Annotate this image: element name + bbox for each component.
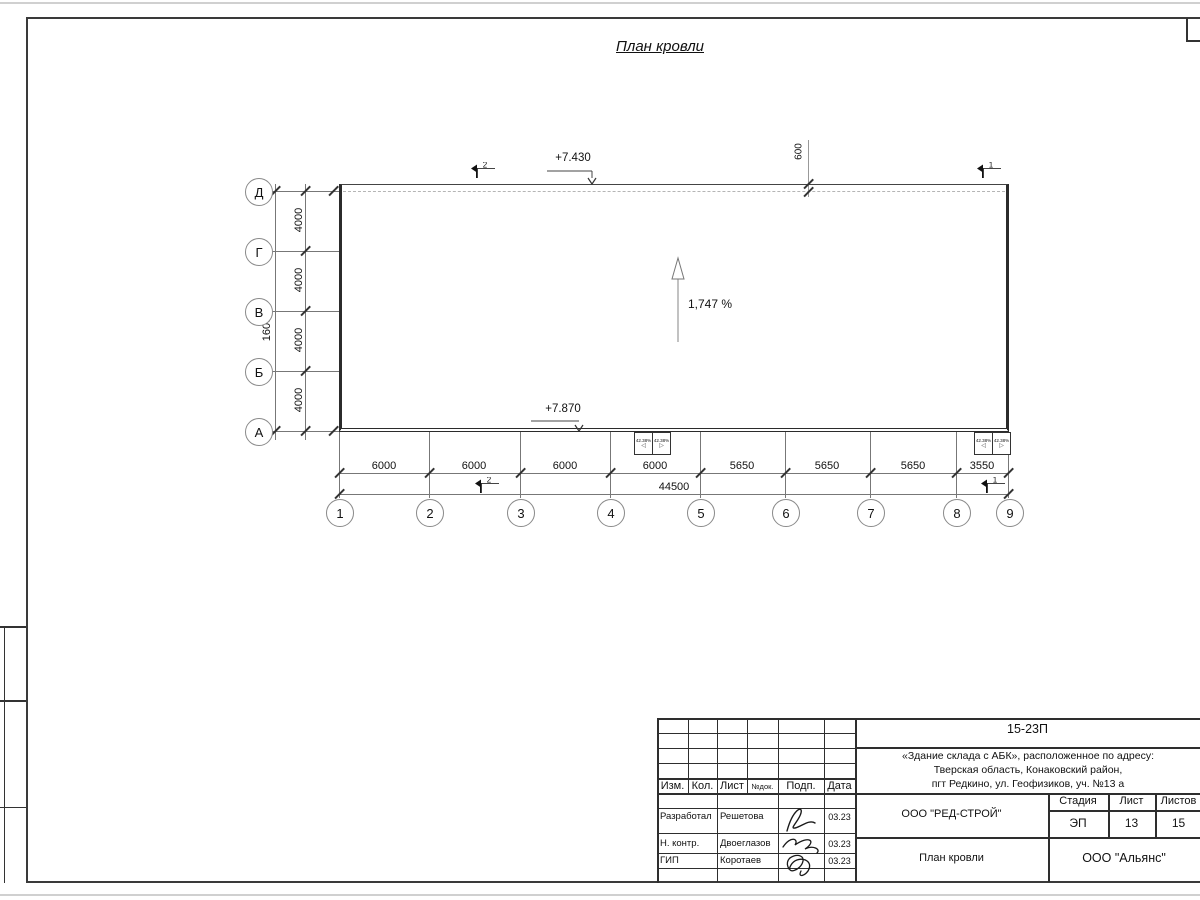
sheets-header: Листов [1155, 795, 1200, 807]
side-stamp-line [0, 807, 26, 808]
col-header-izm: Изм. [657, 780, 688, 792]
axis-circle-col: 3 [507, 499, 535, 527]
title-block-line [657, 868, 855, 869]
axis-label: 8 [953, 506, 960, 521]
row-date: 03.23 [824, 839, 855, 849]
roof-funnel: 42.38% ◁ 42.38% ▷ [634, 432, 671, 455]
axis-line [520, 432, 521, 498]
elevation-leader-icon [545, 167, 597, 187]
slope-label: 1,747 % [688, 297, 732, 311]
arrow-right-icon: ▷ [659, 443, 664, 450]
side-stamp-line [0, 626, 26, 628]
axis-label: Г [255, 245, 262, 260]
title-block-line [855, 837, 1200, 839]
elevation-leader-icon [529, 417, 585, 433]
axis-label: 3 [517, 506, 524, 521]
sheet-header: Лист [1108, 795, 1155, 807]
sheet: План кровли [0, 0, 1200, 900]
title-block-line [657, 748, 855, 749]
parapet-dashed-line [343, 191, 1005, 192]
side-stamp-line [4, 626, 5, 883]
axis-label: Б [255, 365, 264, 380]
sheets-value: 15 [1155, 816, 1200, 830]
title-block-line [717, 718, 718, 882]
axis-line [785, 432, 786, 498]
axis-circle-col: 8 [943, 499, 971, 527]
axis-circle-col: 2 [416, 499, 444, 527]
col-header-kol: Кол. [688, 780, 717, 792]
arrow-right-icon: ▷ [999, 443, 1004, 450]
title-block-line [657, 808, 855, 809]
axis-circle-row: Б [245, 358, 273, 386]
dimension-line [339, 473, 1009, 474]
arrow-left-icon: ◁ [641, 443, 646, 450]
funnel-cell: 42.38% ▷ [653, 433, 670, 454]
address-line: «Здание склада с АБК», расположенное по … [858, 749, 1198, 763]
corner-mark [1186, 18, 1188, 40]
contractor-name: ООО "Альянс" [1048, 851, 1200, 865]
col-header-data: Дата [824, 780, 855, 792]
row-date: 03.23 [824, 812, 855, 822]
axis-label: Д [255, 185, 264, 200]
corner-mark [1186, 40, 1200, 42]
doc-number: 15-23П [855, 722, 1200, 736]
paper-edge-top [0, 2, 1200, 4]
stage-value: ЭП [1048, 816, 1108, 830]
row-role: Н. контр. [660, 838, 716, 849]
axis-circle-row: Д [245, 178, 273, 206]
dim-label: 6000 [625, 460, 685, 472]
stage-header: Стадия [1048, 795, 1108, 807]
dim-label: 5650 [797, 460, 857, 472]
sheet-title: План кровли [855, 852, 1048, 864]
axis-circle-row: А [245, 418, 273, 446]
dim-label: 4000 [293, 316, 305, 364]
section-number: 1 [993, 477, 998, 485]
axis-label: А [255, 425, 264, 440]
axis-label: 6 [782, 506, 789, 521]
dim-label: 4000 [293, 196, 305, 244]
page-title: План кровли [560, 38, 760, 55]
axis-label: 7 [867, 506, 874, 521]
axis-circle-col: 1 [326, 499, 354, 527]
dim-label: 6000 [535, 460, 595, 472]
arrow-left-icon: ◁ [981, 443, 986, 450]
title-block-line [657, 833, 855, 834]
dim-label: 600 [794, 128, 805, 176]
axis-label: 1 [336, 506, 343, 521]
dim-label: 4000 [293, 376, 305, 424]
axis-circle-col: 5 [687, 499, 715, 527]
project-address: «Здание склада с АБК», расположенное по … [858, 749, 1198, 791]
axis-circle-col: 4 [597, 499, 625, 527]
dim-label: 6000 [444, 460, 504, 472]
section-mark-icon: 1 [980, 477, 1006, 497]
axis-label: В [255, 305, 264, 320]
axis-label: 5 [697, 506, 704, 521]
axis-label: 4 [607, 506, 614, 521]
title-block-line [1048, 810, 1200, 812]
axis-line [610, 432, 611, 498]
side-stamp-line [0, 700, 26, 702]
axis-line [429, 432, 430, 498]
title-block-line [657, 763, 855, 764]
axis-label: 2 [426, 506, 433, 521]
dimension-line [339, 494, 1009, 495]
section-number: 2 [487, 477, 492, 485]
col-header-list: Лист [717, 780, 747, 792]
address-line: Тверская область, Конаковский район, [858, 763, 1198, 777]
axis-circle-row: В [245, 298, 273, 326]
dim-label: 6000 [354, 460, 414, 472]
section-number: 1 [989, 162, 994, 170]
row-name: Решетова [720, 811, 777, 822]
funnel-cell: 42.38% ◁ [635, 433, 653, 454]
section-mark-icon: 1 [976, 162, 1002, 182]
axis-circle-col: 7 [857, 499, 885, 527]
title-block-line [657, 733, 855, 734]
section-number: 2 [483, 162, 488, 170]
row-role: ГИП [660, 855, 716, 866]
address-line: пгт Редкино, ул. Геофизиков, уч. №13 а [858, 777, 1198, 791]
axis-label: 9 [1006, 506, 1013, 521]
signature-icon [779, 795, 825, 883]
section-mark-icon: 2 [474, 477, 500, 497]
axis-circle-col: 6 [772, 499, 800, 527]
elevation-label: +7.430 [543, 152, 603, 164]
col-header-podp: Подп. [778, 780, 824, 792]
title-block-line [657, 853, 855, 854]
section-mark-icon: 2 [470, 162, 496, 182]
axis-circle-row: Г [245, 238, 273, 266]
dimension-line [275, 184, 276, 440]
title-block-line [657, 718, 659, 883]
row-role: Разработал [660, 811, 716, 822]
sheet-value: 13 [1108, 816, 1155, 830]
axis-line [870, 432, 871, 498]
row-name: Коротаев [720, 855, 777, 866]
axis-line [339, 432, 340, 498]
col-header-doc: №док. [747, 782, 778, 791]
paper-edge-bottom [0, 894, 1200, 896]
company-name: ООО "РЕД-СТРОЙ" [855, 808, 1048, 820]
row-date: 03.23 [824, 856, 855, 866]
roof-funnel: 42.38% ◁ 42.38% ▷ [974, 432, 1011, 455]
funnel-cell: 42.38% ▷ [993, 433, 1010, 454]
dim-label: 44500 [644, 481, 704, 493]
dim-label: 5650 [712, 460, 772, 472]
dim-label: 5650 [883, 460, 943, 472]
axis-circle-col: 9 [996, 499, 1024, 527]
elevation-label: +7.870 [533, 403, 593, 415]
title-block-line [657, 718, 1200, 720]
row-name: Двоеглазов [720, 838, 777, 849]
funnel-cell: 42.38% ◁ [975, 433, 993, 454]
dim-label: 3550 [952, 460, 1012, 472]
dim-label: 4000 [293, 256, 305, 304]
